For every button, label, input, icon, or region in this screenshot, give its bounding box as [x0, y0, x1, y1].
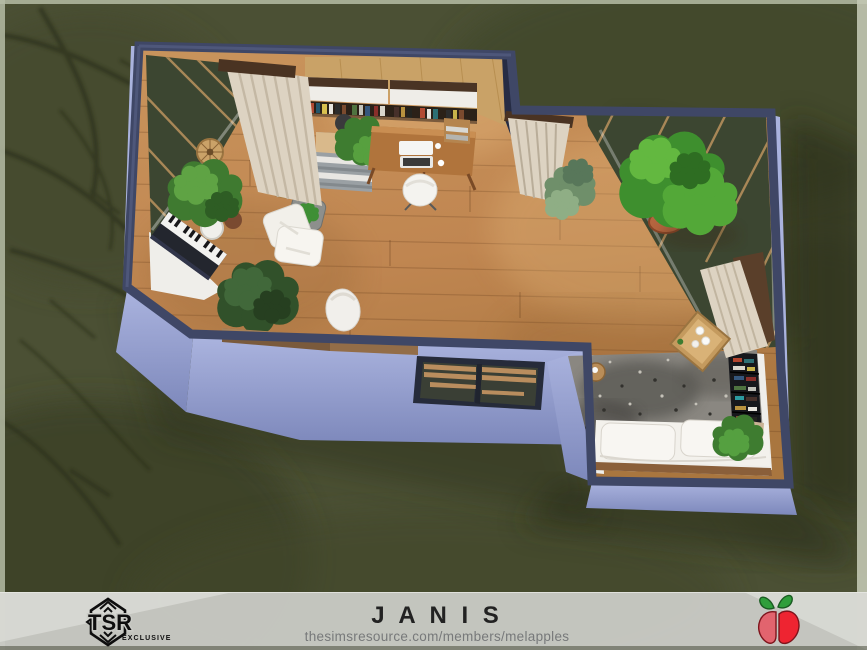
scene-canvas: TSR EXCLUSIVE J A N I S thesimsresource.…: [0, 0, 867, 650]
banner: TSR EXCLUSIVE J A N I S thesimsresource.…: [0, 592, 867, 650]
desk-drawer-unit: [444, 118, 470, 144]
banner-bottom-edge: [0, 646, 867, 650]
creator-url: thesimsresource.com/members/melapples: [305, 629, 570, 644]
tsr-screenshot: TSR EXCLUSIVE J A N I S thesimsresource.…: [0, 0, 867, 650]
slatted-window: [413, 356, 545, 410]
tsr-logo-text: TSR: [88, 610, 132, 635]
tsr-exclusive-text: EXCLUSIVE: [122, 635, 172, 642]
build-title: J A N I S: [371, 602, 503, 629]
